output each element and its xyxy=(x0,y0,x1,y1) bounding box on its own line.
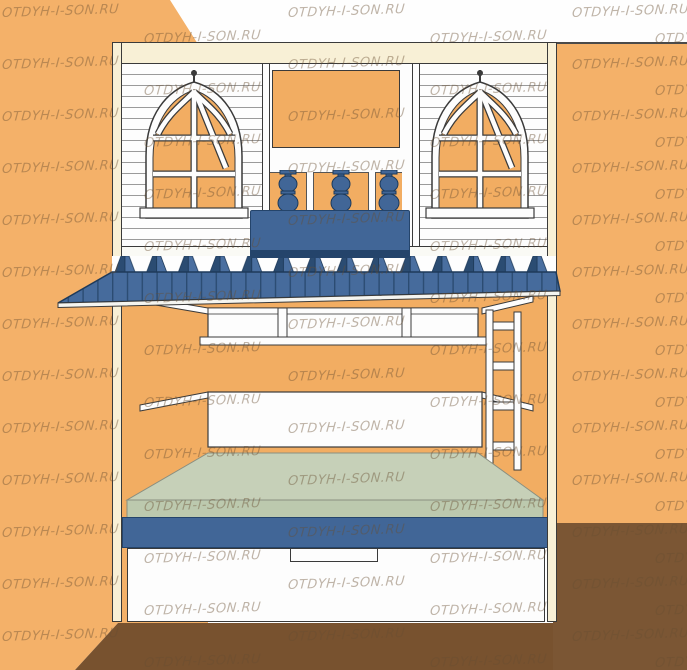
top-beam xyxy=(112,42,557,64)
bed-post-right xyxy=(547,42,557,622)
shingle-awning xyxy=(50,250,565,312)
bed-post-left xyxy=(112,42,122,622)
gothic-window-left xyxy=(138,68,250,220)
rail-post xyxy=(278,308,287,338)
rail-post xyxy=(402,308,411,338)
ladder-rung xyxy=(493,322,514,330)
balcony-balusters xyxy=(270,170,402,214)
room-wall-right xyxy=(553,42,687,523)
gothic-window-right xyxy=(424,68,536,220)
window-sill xyxy=(140,208,248,218)
facade-post xyxy=(412,64,420,253)
drawer-handle xyxy=(290,548,378,562)
shelf-rail xyxy=(200,337,492,345)
baluster xyxy=(379,170,399,212)
ladder-rung xyxy=(493,402,514,410)
baluster xyxy=(331,170,351,212)
shingle-teeth-row xyxy=(112,256,556,272)
upper-opening xyxy=(272,70,400,148)
baluster xyxy=(278,170,298,212)
back-panel xyxy=(208,392,482,447)
planter-box xyxy=(250,210,410,258)
ladder-rung xyxy=(493,362,514,370)
bed-base-rail xyxy=(122,517,548,548)
room-floor-right xyxy=(553,523,687,670)
ladder-rung xyxy=(493,442,514,450)
lower-bunk-structure xyxy=(112,295,557,520)
watermark-text: OTDYH-I-SON.RU xyxy=(288,2,406,21)
watermark-text: OTDYH-I-SON.RU xyxy=(572,2,687,21)
product-photo-scene: OTDYH-I-SON.RUOTDYH-I-SON.RUOTDYH-I-SON.… xyxy=(0,0,687,670)
